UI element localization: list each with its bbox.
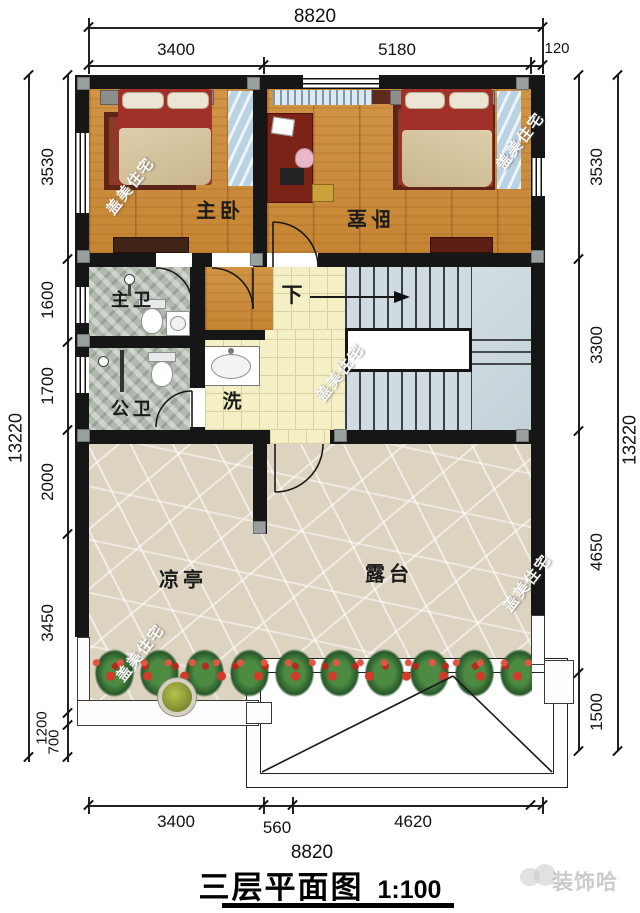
master-bath-sink-basin [170, 316, 186, 331]
title-underline [222, 903, 454, 908]
public-bath-toilet-bowl [151, 361, 173, 387]
dim-bottom-seg1: 3400 [157, 812, 195, 832]
dim-line [88, 805, 542, 807]
dim-top-seg2: 5180 [378, 40, 416, 60]
parapet-cap-left [246, 702, 272, 724]
wall-left-terrace [75, 444, 89, 637]
desk-stool [312, 184, 334, 202]
dim-bottom-seg3: 4620 [394, 812, 432, 832]
dim-left-seg7: 700 [46, 729, 63, 754]
bedroom-bed-duvet [402, 130, 492, 187]
wall-top-left [75, 75, 303, 89]
label-wash: 洗 [222, 387, 241, 414]
dim-top-seg1: 3400 [157, 40, 195, 60]
desk-paper [271, 117, 295, 137]
round-planter-pot [158, 678, 196, 716]
column [77, 334, 90, 347]
dim-right-seg4: 1500 [587, 693, 607, 731]
master-wardrobe [113, 237, 189, 253]
dim-right-seg2: 3300 [587, 326, 607, 364]
column [531, 250, 544, 263]
left-wall-window-publicbath [75, 357, 89, 393]
entry-nook-floor [205, 267, 273, 330]
wall-left-1 [75, 89, 89, 133]
wall-bath-divider [89, 336, 190, 348]
dim-left-total: 13220 [6, 413, 27, 463]
left-wall-window-masterbath [75, 287, 89, 323]
dim-line [617, 75, 619, 751]
stairs-landing [472, 267, 531, 430]
dim-left-seg2: 1600 [38, 281, 58, 319]
wall-bottom-left [89, 430, 270, 444]
wall-middle-a1 [89, 253, 156, 267]
label-master-bedroom: 主卧 [196, 195, 244, 224]
dim-bottom-seg2: 560 [263, 818, 291, 838]
wall-middle-a3 [318, 253, 531, 267]
dim-line [88, 65, 542, 67]
wall-nook-bottom [195, 330, 265, 340]
bedroom-dresser [430, 237, 493, 253]
label-public-bath: 公卫 [111, 395, 155, 421]
master-bed-pillow-right [167, 92, 209, 109]
stairs-lower-flight [345, 372, 472, 430]
parapet-right-lower [531, 615, 545, 665]
label-terrace: 露台 [365, 558, 413, 587]
column [253, 521, 266, 534]
dim-left-seg5: 3450 [38, 604, 58, 642]
title-text: 三层平面图 [199, 862, 364, 907]
bedroom-bed-pillow-right [449, 92, 489, 109]
stairs-upper-flight [345, 267, 472, 328]
label-pavilion: 凉亭 [159, 564, 207, 593]
dim-right-seg1: 3530 [587, 148, 607, 186]
dim-left-seg3: 1700 [38, 367, 58, 405]
column [77, 77, 90, 90]
wall-middle-a2 [192, 253, 212, 267]
public-bath-shower-rail [120, 350, 124, 392]
wall-bedroom-divider [253, 89, 267, 267]
dim-bottom-total: 8820 [291, 842, 333, 864]
drawing-title: 三层平面图 1:100 [199, 862, 442, 907]
column [516, 429, 529, 442]
desk-laptop [280, 168, 304, 185]
right-wall-window [531, 158, 545, 196]
master-bed-pillow-left [122, 92, 164, 109]
brand-watermark: 装饰哈 [552, 866, 618, 896]
dim-line [578, 75, 580, 751]
dim-line [28, 75, 30, 762]
master-bedroom-glass-panel [228, 91, 253, 186]
column [250, 253, 263, 266]
column [77, 429, 90, 442]
terrace-door-threshold [270, 430, 330, 444]
bedroom-top-window-band [273, 90, 372, 105]
column [77, 250, 90, 263]
public-bath-shower-head [98, 356, 109, 367]
wall-bottom-right [330, 430, 531, 444]
left-wall-window-master [75, 133, 89, 213]
floor-plan: 主卧 卧室 主卫 公卫 洗 下 凉亭 露台 8820 3400 5180 120… [0, 0, 640, 913]
wall-bath-right-upper [190, 267, 205, 388]
dim-top-seg3: 120 [544, 40, 569, 57]
dim-left-seg1: 3530 [38, 148, 58, 186]
dim-top-total: 8820 [294, 6, 336, 28]
label-master-bath: 主卫 [111, 286, 155, 312]
label-bedroom: 卧室 [343, 206, 391, 235]
wash-sink-faucet [228, 348, 234, 354]
parapet-left-lower [77, 637, 90, 703]
dim-line [67, 75, 69, 762]
parapet-cap-right [544, 660, 574, 704]
label-stairs-down: 下 [282, 279, 303, 309]
bedroom-bed-pillow-left [405, 92, 445, 109]
wash-sink-basin [211, 354, 251, 379]
dim-right-total: 13220 [620, 415, 640, 465]
top-wall-window [303, 75, 379, 89]
desk-chair [295, 148, 314, 168]
title-scale: 1:100 [378, 876, 442, 905]
column [247, 77, 260, 90]
column [516, 77, 529, 90]
dim-line [88, 27, 542, 29]
wall-right-2 [531, 196, 545, 444]
dim-right-seg3: 4650 [587, 533, 607, 571]
dim-left-seg4: 2000 [38, 463, 58, 501]
column [334, 429, 347, 442]
